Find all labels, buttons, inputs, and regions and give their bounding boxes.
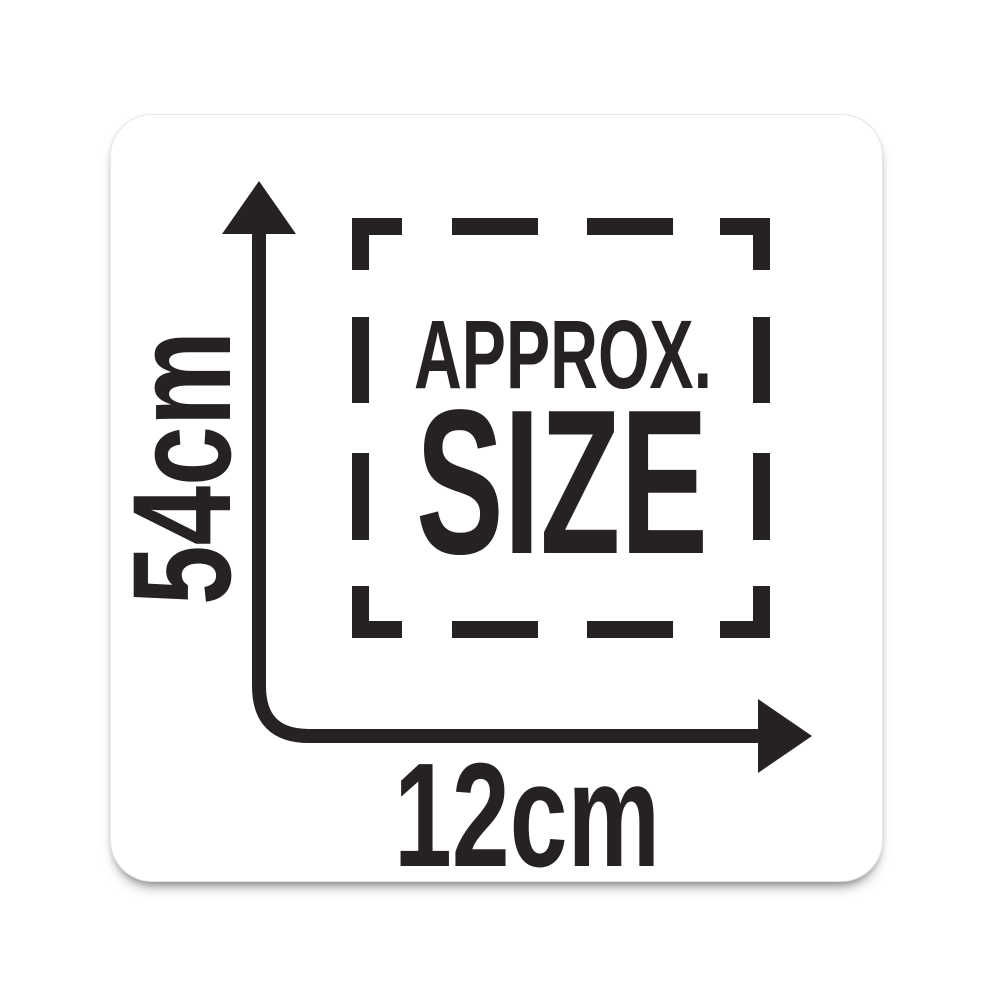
dashed-box-dash bbox=[587, 621, 673, 638]
arrow-right-head-icon bbox=[758, 699, 812, 773]
dashed-box-corner-top-right bbox=[720, 218, 770, 270]
dashed-box-dash bbox=[753, 453, 770, 540]
dashed-box-corner-bottom-left bbox=[352, 586, 402, 638]
dashed-box-corner-top-left bbox=[352, 218, 402, 270]
width-value-label: 12cm bbox=[394, 733, 660, 898]
dashed-box-dash bbox=[753, 317, 770, 403]
approx-size-diagram: APPROX. SIZE 12cm 54cm bbox=[0, 0, 1000, 1000]
dashed-box-dash bbox=[352, 317, 369, 403]
dashed-box-dash bbox=[452, 218, 538, 235]
dashed-box-dash bbox=[452, 621, 538, 638]
arrow-up-head-icon bbox=[222, 181, 296, 234]
dashed-box-dash bbox=[352, 453, 369, 540]
size-label: SIZE bbox=[416, 367, 708, 597]
dashed-box-dash bbox=[587, 218, 673, 235]
dashed-box-corner-bottom-right bbox=[720, 586, 770, 638]
height-value-label: 54cm bbox=[103, 331, 260, 605]
page-background: APPROX. SIZE 12cm 54cm bbox=[0, 0, 1000, 1000]
